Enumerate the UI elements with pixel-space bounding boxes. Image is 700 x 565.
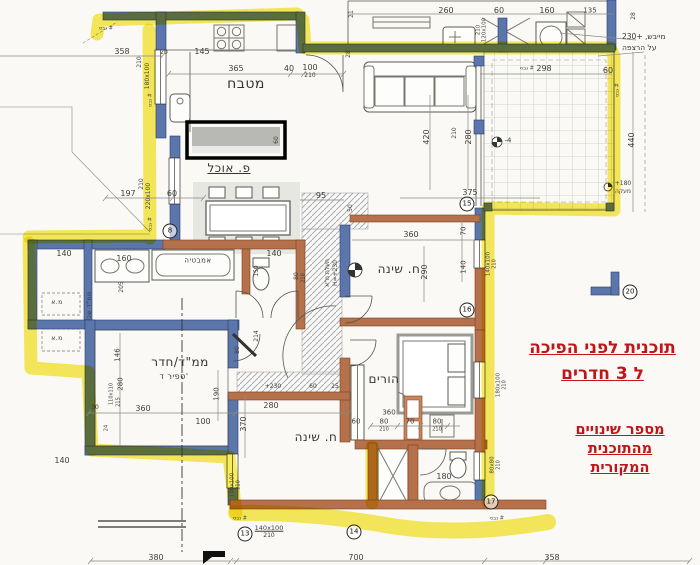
dim-label: 60 [603, 67, 613, 75]
dryer-note-line1: מייבש, +230 [622, 32, 700, 43]
dim-label: 210 [493, 259, 498, 269]
room-label: פ. אוכל [207, 162, 250, 174]
dim-label: 60 [309, 384, 317, 390]
room-label: ח. שינה [295, 431, 338, 443]
annotation-note-line2: מהתוכנית [540, 441, 700, 457]
dim-label: 60 [494, 7, 504, 15]
annotation-note-line1: מספר שינויים [540, 422, 700, 438]
dim-label: 21 [349, 10, 355, 18]
dim-label: 210 [137, 56, 143, 67]
dim-label: 210 [304, 73, 315, 79]
annotation-title: תוכנית לפני הפיכה ל 3 חדרים [505, 338, 700, 384]
dim-label: 80 [235, 346, 241, 354]
dim-label: גבס # [490, 517, 504, 522]
dim-label: מעקה [615, 189, 631, 195]
dim-label: 210 [237, 480, 242, 490]
dim-label: 180 [436, 473, 451, 481]
dim-label: 80 [380, 419, 389, 426]
annotation-title-line1: תוכנית לפני הפיכה [505, 338, 700, 358]
dim-label: H=+230 [333, 260, 339, 286]
room-label: מ.א [51, 336, 63, 342]
dim-label: 70 [406, 419, 415, 426]
dim-label: 298 [536, 65, 551, 73]
dim-label: 365 [228, 65, 243, 73]
dim-label: גבס # [149, 93, 154, 107]
dim-label: 210 [476, 25, 482, 36]
dim-label: 50 [348, 204, 354, 212]
dim-label: 190 [214, 387, 221, 400]
dim-label: +180 [615, 181, 631, 187]
dim-label: 360 [382, 410, 395, 417]
dim-label: 20 [160, 50, 168, 56]
dim-label: 360 [403, 231, 418, 239]
dim-label: 210 [263, 533, 274, 539]
dim-label: 140 [266, 250, 281, 258]
dim-label: 40 [284, 65, 294, 73]
dim-label: 290 [421, 264, 429, 279]
dim-label: 280 [263, 402, 278, 410]
wall-marker-badge: 8 [163, 224, 178, 239]
dim-label: 100 [302, 64, 317, 72]
dim-label: 360 [135, 405, 150, 413]
dim-label: 210 [497, 460, 502, 470]
dim-label: 280 [118, 377, 125, 390]
dim-label: 28 [631, 12, 637, 20]
dim-label: 80 [433, 419, 442, 426]
dim-label: 146 [115, 348, 122, 361]
dim-label: 420 [423, 129, 431, 144]
dim-label: -4 [505, 138, 512, 145]
wall-marker-badge: 14 [347, 525, 362, 540]
dim-label: 358 [544, 554, 559, 562]
dim-label: 210 [302, 273, 307, 283]
dryer-note: מייבש, +230 על הרצפה [622, 32, 700, 54]
dim-label: +230 [265, 384, 281, 390]
wall-marker-badge: 16 [460, 303, 475, 318]
room-label: הורים [368, 373, 399, 385]
dim-label: 28 [346, 50, 352, 58]
dim-label: 140 [56, 250, 71, 258]
wall-marker-badge: 15 [460, 197, 475, 212]
room-label: ממ"ד/חדר [151, 356, 209, 368]
dim-label: 30 [91, 405, 99, 411]
annotation-note: מספר שינויים מהתוכנית המקורית [540, 419, 700, 476]
dim-label: 140 [54, 457, 69, 465]
room-label: ח. שינה [378, 263, 421, 275]
dim-label: 120x100 [482, 18, 488, 42]
dim-label: 95 [316, 192, 326, 200]
dim-label: 60 [352, 419, 361, 426]
dryer-note-line2: על הרצפה [622, 43, 700, 54]
dim-label: 214 [254, 330, 260, 341]
dim-label: 145 [194, 48, 209, 56]
dim-label: 70 [461, 227, 468, 236]
room-label: מטבח [227, 77, 265, 91]
dim-label: 700 [348, 554, 363, 562]
dim-label: 210 [379, 428, 389, 433]
dim-label: 280 [465, 129, 473, 144]
dim-label: 25 [331, 384, 339, 390]
dim-label: 180x100 [145, 63, 151, 89]
dim-label: 110x110 [110, 383, 115, 405]
room-label: ממ"ד שכן [87, 291, 93, 320]
dim-label: 160 [539, 7, 554, 15]
dim-label: 140 [461, 260, 468, 273]
dim-label: 150 [254, 265, 260, 276]
wall-marker-badge: 13 [238, 527, 253, 542]
dim-label: 80 [294, 272, 300, 280]
annotation-note-line3: המקורית [540, 460, 700, 476]
dim-label: גבס # [99, 27, 113, 32]
floorplan-drawing [0, 0, 700, 565]
dim-label: 210 [432, 428, 442, 433]
dim-label: 135 [583, 8, 596, 15]
dim-label: 160 [116, 255, 131, 263]
room-label: אמבטיה [184, 258, 211, 265]
dim-label: גבס # [520, 67, 534, 72]
dim-label: 210 [452, 127, 458, 138]
wall-marker-badge: 20 [623, 285, 638, 300]
floorplan-page: 3581452036540100210210180x100210220x1001… [0, 0, 700, 565]
dim-label: 140x100 [255, 525, 284, 532]
dim-label: 215 [117, 397, 122, 407]
wall-marker-badge: 17 [484, 495, 499, 510]
dim-label: גבס # [233, 517, 247, 522]
room-label: ספיר ד' [159, 373, 188, 381]
dim-label: 24 [105, 425, 110, 431]
dim-label: 380 [148, 554, 163, 562]
dim-label: 197 [120, 190, 135, 198]
dim-label: 220x100 [146, 183, 152, 209]
dim-label: גבס # [149, 217, 154, 231]
dim-label: 60 [167, 190, 177, 198]
annotation-title-line2: ל 3 חדרים [505, 364, 700, 384]
dim-label: 260 [438, 7, 453, 15]
dim-label: 205 [119, 281, 125, 292]
dim-label: 358 [114, 48, 129, 56]
dim-label: 370 [240, 416, 248, 431]
dim-label: 100 [195, 418, 210, 426]
room-label: מ.א [51, 300, 63, 306]
dim-label: 60 [274, 136, 280, 144]
dim-label: גבס # [616, 83, 621, 97]
dim-label: 440 [628, 132, 636, 147]
dim-label: תעלת מ"א [325, 259, 331, 287]
